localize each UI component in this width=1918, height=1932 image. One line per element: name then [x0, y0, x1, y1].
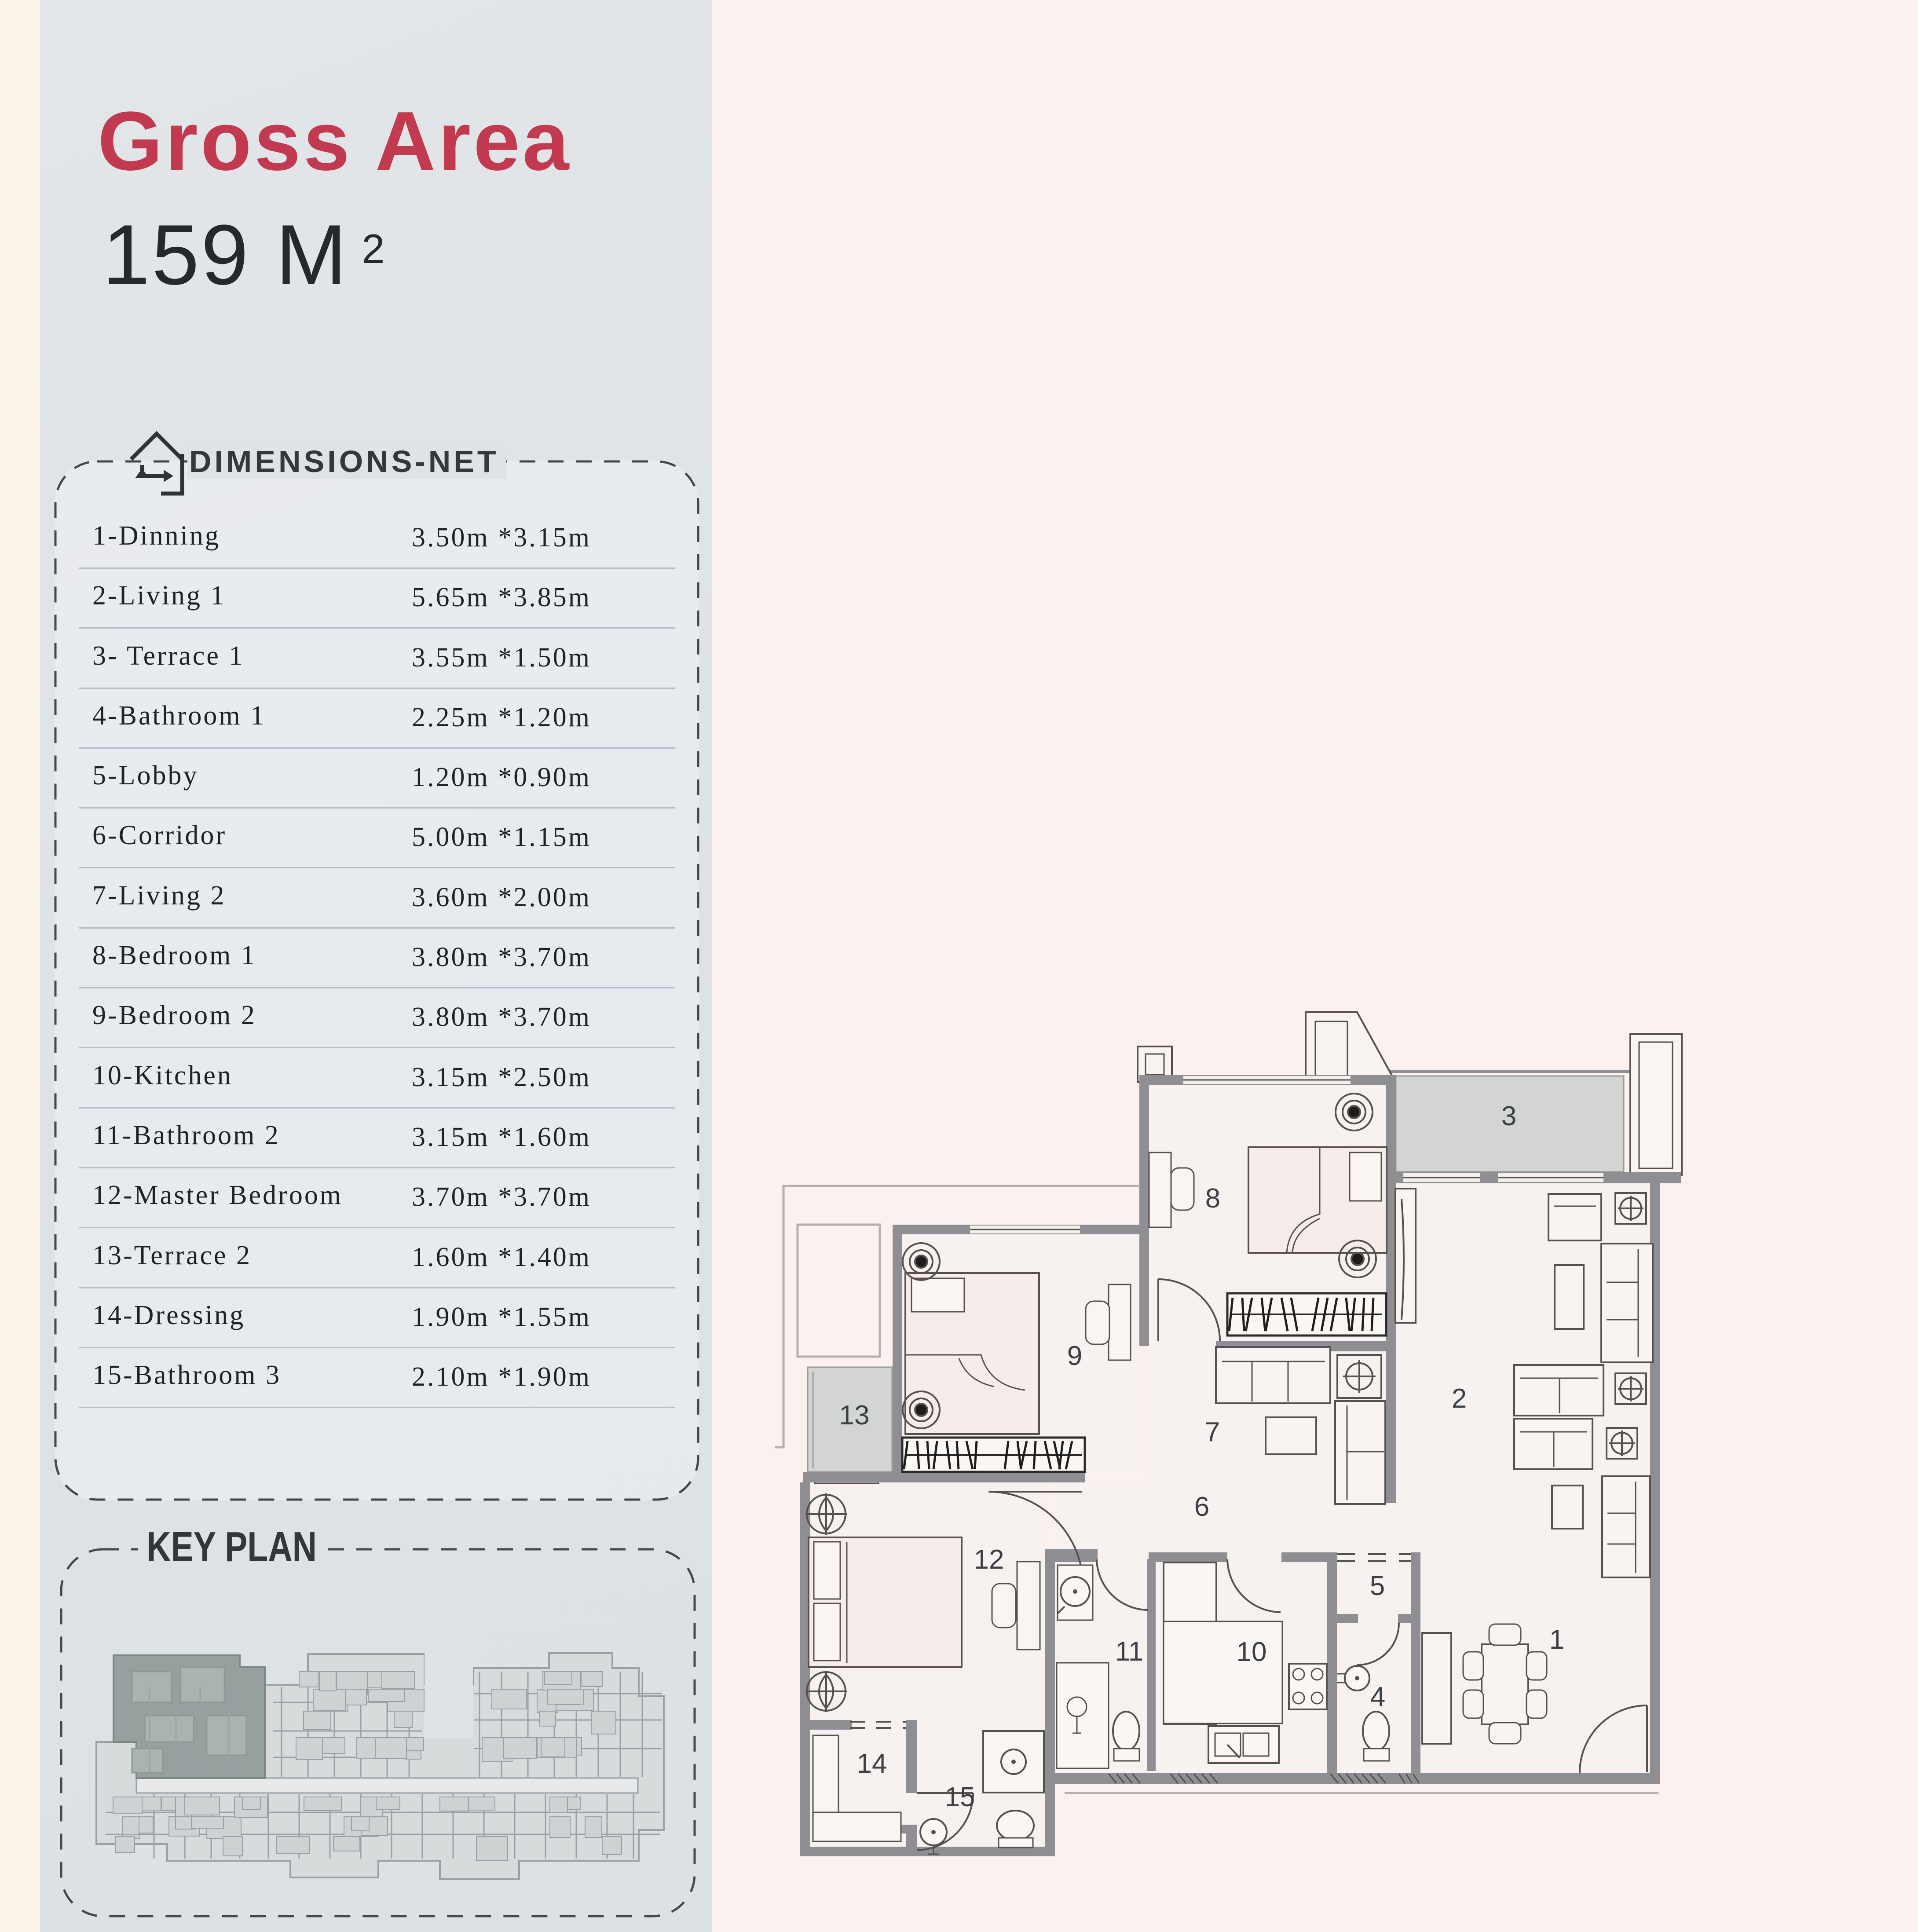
- svg-text:12: 12: [974, 1544, 1004, 1575]
- svg-text:7: 7: [1205, 1417, 1220, 1447]
- svg-text:8: 8: [1205, 1183, 1220, 1214]
- svg-text:15: 15: [945, 1782, 975, 1812]
- svg-text:3: 3: [1501, 1101, 1516, 1131]
- svg-text:13: 13: [839, 1400, 870, 1431]
- svg-text:11: 11: [1115, 1636, 1143, 1667]
- svg-text:10: 10: [1237, 1637, 1267, 1667]
- svg-text:1: 1: [1549, 1625, 1564, 1655]
- svg-text:2: 2: [1452, 1383, 1467, 1414]
- svg-text:9: 9: [1067, 1341, 1082, 1371]
- svg-text:6: 6: [1194, 1492, 1209, 1522]
- svg-text:5: 5: [1370, 1571, 1385, 1601]
- svg-text:14: 14: [857, 1749, 887, 1779]
- svg-text:4: 4: [1370, 1682, 1385, 1712]
